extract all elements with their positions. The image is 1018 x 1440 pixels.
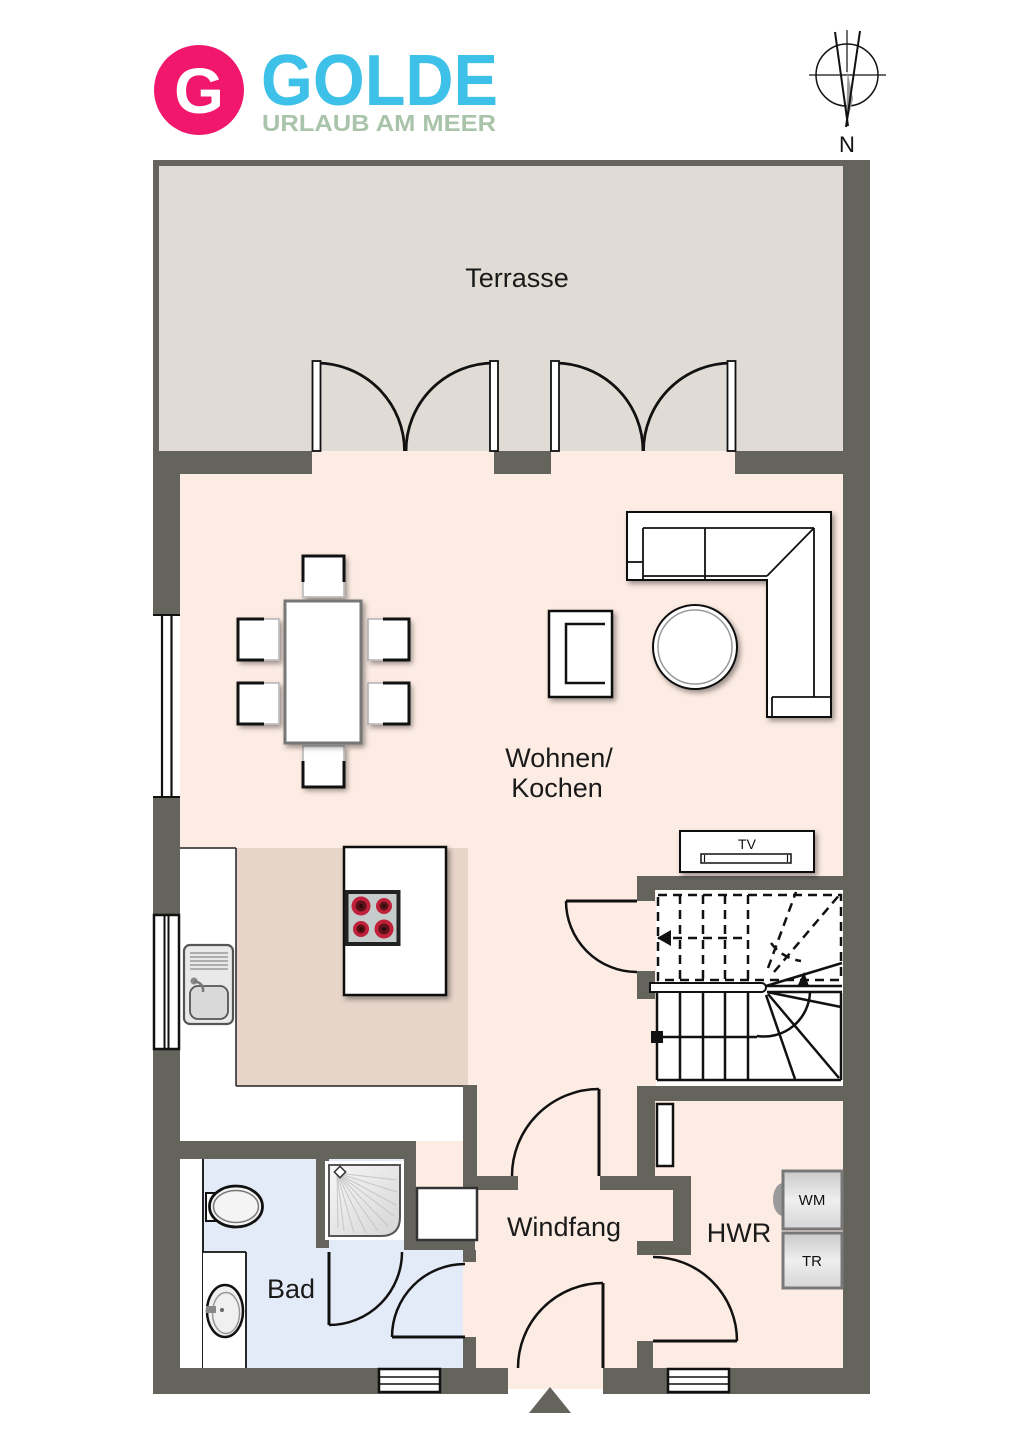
svg-text:WM: WM — [799, 1192, 826, 1209]
svg-text:N: N — [839, 132, 855, 157]
svg-text:Wohnen/: Wohnen/ — [505, 743, 613, 773]
svg-text:TR: TR — [802, 1253, 822, 1270]
svg-text:GOLDE: GOLDE — [261, 41, 498, 121]
svg-text:Windfang: Windfang — [507, 1212, 621, 1242]
svg-text:HWR: HWR — [707, 1218, 771, 1248]
svg-text:Kochen: Kochen — [511, 773, 603, 803]
svg-text:Bad: Bad — [267, 1274, 315, 1304]
svg-text:TV: TV — [738, 836, 757, 852]
svg-text:Terrasse: Terrasse — [465, 263, 569, 293]
svg-text:URLAUB AM MEER: URLAUB AM MEER — [262, 110, 496, 136]
svg-text:G: G — [174, 55, 224, 127]
